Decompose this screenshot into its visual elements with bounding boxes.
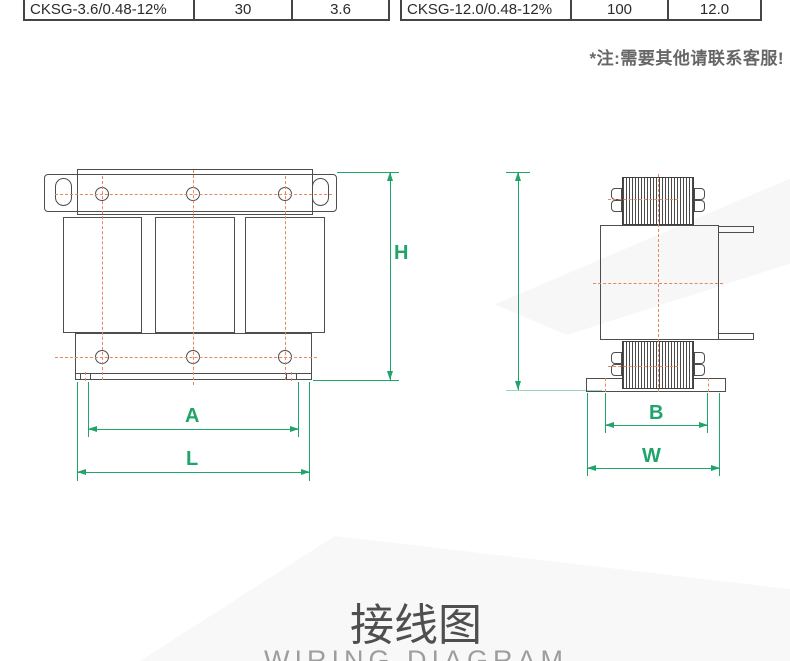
left-spec-table: CKSG-3.6/0.48-12% 30 3.6 xyxy=(23,0,390,21)
spec-capacity-cell: 30 xyxy=(193,0,291,19)
dim-extension xyxy=(77,382,78,481)
centerline-vertical xyxy=(285,176,286,380)
dim-label-A: A xyxy=(185,406,199,426)
centerline-base-tick xyxy=(605,378,606,392)
dim-label-H: H xyxy=(394,243,408,263)
spec-inductance-cell: 3.6 xyxy=(291,0,390,19)
arrow-left-icon xyxy=(605,422,614,428)
arrow-up-icon xyxy=(387,172,393,181)
spec-capacity-cell: 100 xyxy=(570,0,667,19)
centerline-horizontal xyxy=(593,283,723,284)
coil-terminal xyxy=(694,200,705,212)
dim-extension xyxy=(313,380,399,381)
mounting-slot xyxy=(55,178,72,206)
arrow-right-icon xyxy=(290,426,299,432)
wiring-diagram-title-zh: 接线图 xyxy=(350,589,482,653)
arrow-left-icon xyxy=(587,465,596,471)
dim-extension xyxy=(309,382,310,481)
dim-line-A xyxy=(88,429,299,430)
spec-model-cell: CKSG-3.6/0.48-12% xyxy=(23,0,193,19)
arrow-right-icon xyxy=(699,422,708,428)
terminal-lug xyxy=(718,226,754,233)
dim-line-W xyxy=(587,468,720,469)
coil-terminal xyxy=(694,188,705,200)
coil-terminal xyxy=(611,200,622,212)
arrow-down-icon xyxy=(515,381,521,390)
centerline-vertical xyxy=(193,170,194,385)
arrow-down-icon xyxy=(387,371,393,380)
wiring-diagram-title-en: WIRING DIAGRAM xyxy=(264,645,568,661)
foot-tick xyxy=(296,373,297,380)
centerline-horizontal xyxy=(608,366,678,367)
dim-extension xyxy=(587,393,588,476)
dim-label-W: W xyxy=(642,446,661,466)
dim-line-H xyxy=(390,172,391,380)
coil-terminal xyxy=(694,352,705,364)
coil-terminal xyxy=(611,352,622,364)
dim-line-L xyxy=(77,472,310,473)
dim-extension xyxy=(719,393,720,476)
dim-label-B: B xyxy=(649,403,663,423)
dim-line-height xyxy=(518,172,519,390)
terminal-lug xyxy=(718,333,754,340)
arrow-up-icon xyxy=(515,172,521,181)
foot-tick xyxy=(90,373,91,380)
dim-line-B xyxy=(605,425,708,426)
centerline-vertical xyxy=(102,176,103,380)
mounting-slot xyxy=(312,178,329,206)
right-spec-table: CKSG-12.0/0.48-12% 100 12.0 xyxy=(400,0,762,21)
arrow-right-icon xyxy=(301,469,310,475)
foot-tick xyxy=(80,373,81,380)
spec-model-cell: CKSG-12.0/0.48-12% xyxy=(400,0,570,19)
centerline-foot xyxy=(291,372,292,381)
centerline-foot xyxy=(85,372,86,381)
spec-inductance-cell: 12.0 xyxy=(667,0,762,19)
centerline-base-tick xyxy=(708,378,709,392)
service-note: *注:需要其他请联系客服! xyxy=(590,44,784,69)
dim-label-L: L xyxy=(186,449,198,469)
arrow-left-icon xyxy=(88,426,97,432)
product-detail-screenshot: CKSG-3.6/0.48-12% 30 3.6 CKSG-12.0/0.48-… xyxy=(0,0,790,661)
coil-terminal xyxy=(694,364,705,376)
centerline-horizontal xyxy=(55,357,317,358)
coil-limb-middle xyxy=(155,217,235,333)
centerline-horizontal xyxy=(608,199,678,200)
arrow-left-icon xyxy=(77,469,86,475)
arrow-right-icon xyxy=(711,465,720,471)
foot-tick xyxy=(286,373,287,380)
